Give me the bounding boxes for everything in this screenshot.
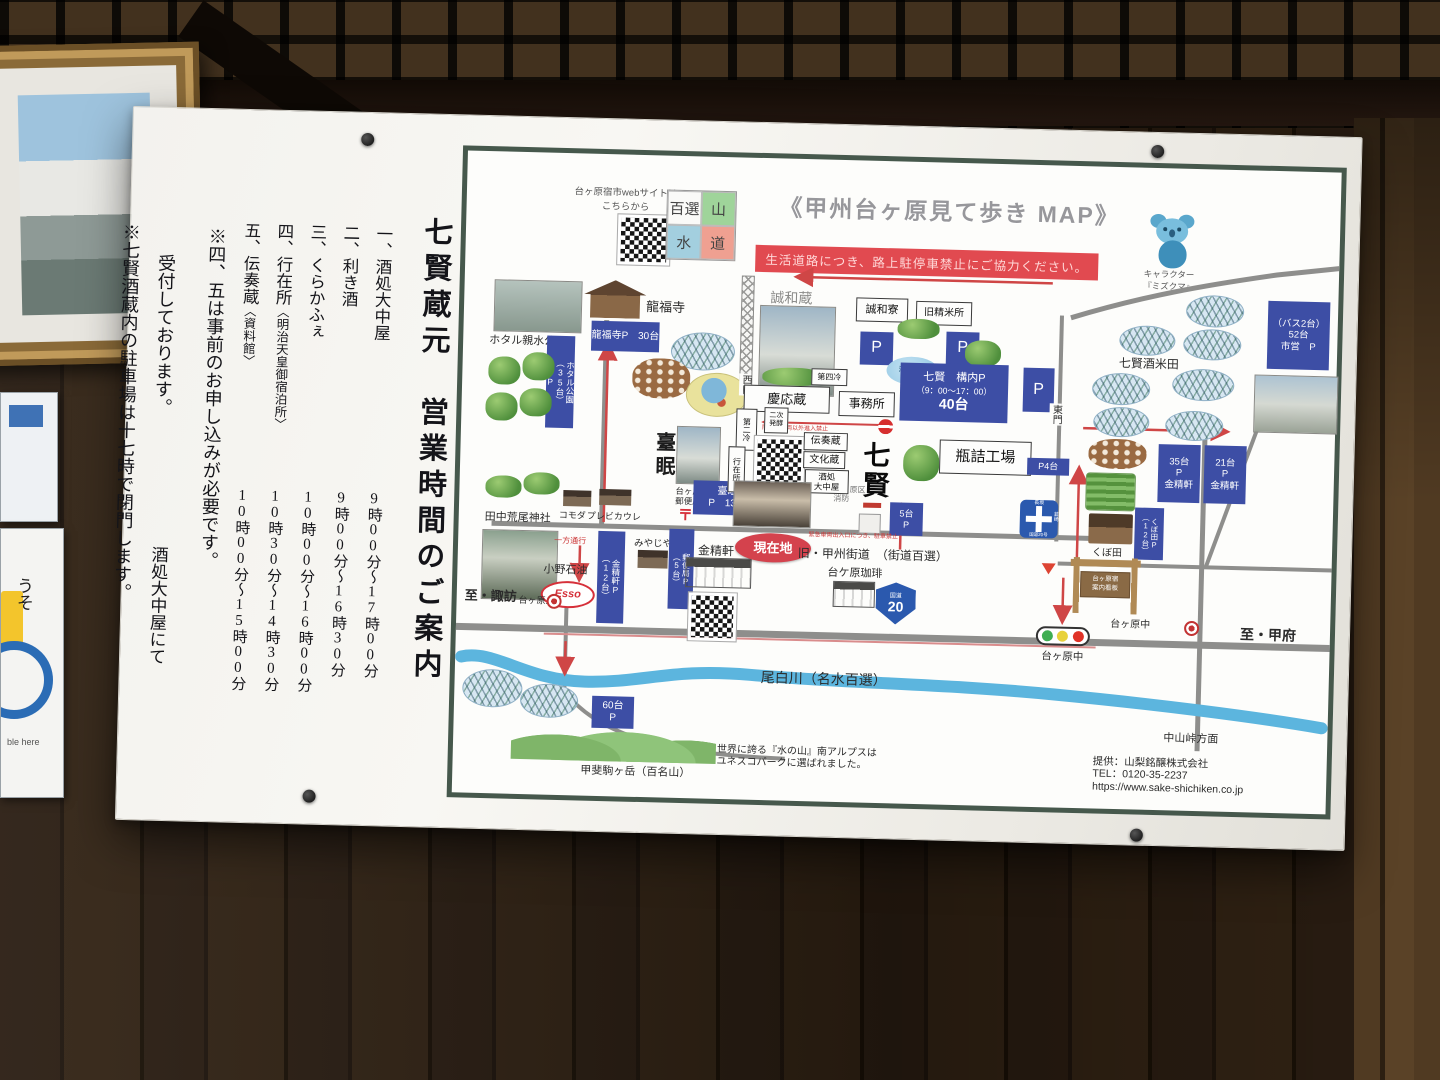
parking-shiei: （バス2台） 52台 市営 P (1267, 301, 1331, 371)
hours-item-time: 10時00分～15時00分 (227, 488, 253, 691)
wood-wall-right (1354, 118, 1440, 1080)
no-entry-icon (878, 419, 893, 434)
rice-paddy-icon (520, 683, 579, 718)
sign-fragment-text: うそ (11, 577, 36, 611)
hours-item: 一、酒処大中屋9時00分～17時00分 (356, 215, 395, 819)
rice-paddy-icon (1186, 295, 1245, 328)
parking-kinseiken-21: 21台 P 金精軒 (1203, 445, 1246, 504)
screw-icon (361, 133, 374, 146)
box-dai4rei: 第四冷 (811, 368, 847, 386)
kinseiken-building-icon (685, 557, 752, 589)
daimin-logo: 臺眠 (645, 431, 674, 490)
tree-icon (897, 318, 939, 339)
hours-item-time: 10時00分～16時00分 (293, 489, 319, 692)
hours-item-name: 三、くらかふぇ (305, 223, 327, 339)
shrub-icon (485, 475, 522, 498)
label-daigahara-coffee: 台ケ原珈琲 (827, 567, 882, 581)
intersection-sign: 長坂韮崎国道20号 (1019, 500, 1058, 539)
rice-paddy-icon (1092, 372, 1151, 405)
screw-icon (1151, 145, 1164, 158)
hours-item: 四、行在所〈明治天皇御宿泊所〉10時30分～14時30分 (257, 213, 296, 817)
qr-code (688, 592, 737, 641)
label-emergency-no-parking: 緊急車両出入口につき、駐車禁止 (808, 532, 898, 541)
hours-item-name: 二、利き酒 (339, 224, 360, 307)
signal-dot (1073, 631, 1084, 642)
parking-p4: P4台 (1027, 458, 1069, 476)
photo-sakedokoro-daichuya (733, 480, 812, 528)
hours-note: ※四、五は事前のお申し込みが必要です。 (189, 211, 230, 815)
fire-station-icon (858, 513, 880, 534)
label-to-kofu: 至・甲府 (1240, 626, 1296, 644)
parking-shichiken-kounai: 七賢 構内P（9：00～17：00）40台 (899, 363, 1008, 424)
label-seiwagura: 誠和蔵 (770, 289, 812, 307)
box-jimusho: 事務所 (838, 391, 895, 417)
hours-item-sub: 〈明治天皇御宿泊所〉 (272, 305, 289, 430)
tree-icon (903, 445, 940, 482)
label-purebikaure: プレビカウレ (587, 511, 641, 523)
map-footer-credit: 提供：山梨銘醸株式会社 TEL：0120-35-2237 https://www… (1092, 755, 1244, 796)
hours-item-time: 10時30分～14時30分 (260, 488, 286, 691)
hours-item-name: 五、伝奏蔵 (240, 222, 261, 305)
hours-panel: 七賢蔵元 営業時間のご案内一、酒処大中屋9時00分～17時00分二、利き酒9時0… (144, 210, 457, 821)
label-daigahara-naka: 台ヶ原中 (1041, 650, 1083, 663)
hours-note-text: ※四、五は事前のお申し込みが必要です。 (198, 227, 227, 569)
field-icon (1085, 472, 1136, 511)
map: 台ヶ原宿市webサイトは こちらから 百選山水道 《甲州台ヶ原見て歩き MAP》… (452, 150, 1342, 814)
hours-item-time: 9時00分～17時00分 (360, 491, 386, 678)
box-niji-hakko: 二次 発酵 (764, 407, 789, 434)
hours-item-name: 一、酒処大中屋 (371, 225, 393, 341)
hours-columns: 七賢蔵元 営業時間のご案内一、酒処大中屋9時00分～17時00分二、利き酒9時0… (103, 209, 457, 821)
box-densogura: 伝奏蔵 (804, 432, 848, 451)
intersection-sign-label: 国道20号 (1019, 531, 1057, 537)
intersection-sign-label: 韮崎 (1052, 512, 1058, 522)
rice-paddy-icon (462, 669, 523, 709)
sign-blue-ring (0, 641, 53, 719)
label-kaikomagatake: 甲斐駒ヶ岳（百名山） (580, 765, 690, 781)
label-old-koshu-kaido: 旧・甲州街道 （街道百選） (798, 546, 948, 564)
sign-fragment-text: ble here (7, 737, 40, 747)
gate-board: 台ヶ原宿 案内看板 (1080, 571, 1131, 598)
tree-icon (488, 356, 521, 385)
label-nakayama-pass: 中山峠方面 (1163, 732, 1218, 746)
route-marker-icon (1041, 563, 1055, 574)
label-ojira-river: 尾白川（名水百選） (761, 669, 887, 689)
box-bunkagura: 文化蔵 (803, 451, 845, 469)
hours-item-name: 四、行在所 (273, 223, 294, 306)
intersection-sign-label: 長坂 (1020, 501, 1058, 508)
rice-paddy-icon (1119, 325, 1176, 356)
label-daigahara-naka: 台ヶ原中 (1110, 619, 1150, 632)
label-kinseiken: 金精軒 (698, 543, 734, 558)
bus-stop-icon (1184, 621, 1199, 636)
hours-item-sub: 〈資料館〉 (240, 304, 256, 367)
field-icon (632, 358, 691, 399)
tree-icon (965, 340, 1002, 367)
label-tanaka-arao-shrine: 田中荒尾神社 (485, 511, 551, 526)
label-shichiken-rice-field: 七賢酒米田 (1119, 356, 1179, 372)
route-shield-number: 20 (888, 599, 904, 613)
label-unesco-note: 世界に誇る『水の山』南アルプスは ユネスコパークに選ばれました。 (716, 744, 876, 772)
photo-city-parking (1253, 374, 1338, 434)
traffic-light-icon (1036, 626, 1090, 646)
map-frame: 台ヶ原宿市webサイトは こちらから 百選山水道 《甲州台ヶ原見て歩き MAP》… (447, 145, 1347, 819)
label-ryufukuji: 龍福寺 (646, 299, 685, 315)
hours-note-tail: 酒処大中屋にて (143, 545, 171, 665)
shichiken-logo: 七賢 (856, 437, 890, 504)
shop-icon (599, 489, 631, 506)
parking-line: 40台 (939, 396, 969, 414)
hours-note-text: ※七賢酒蔵内の駐車場は十七時で閉門します。 (111, 223, 141, 601)
label-miyajiya: みやじや (634, 538, 672, 550)
coffee-building-icon (833, 581, 876, 608)
shrub-icon (523, 472, 560, 495)
box-seiwa-ryo: 誠和寮 (856, 297, 909, 322)
label-ono-sekiyu: 小野石油 (543, 564, 587, 578)
shop-icon-komoda (563, 490, 591, 507)
kaikomagatake-mountain-icon (511, 721, 717, 764)
hours-item: 五、伝奏蔵〈資料館〉10時00分～15時00分 (224, 212, 263, 816)
rice-paddy-icon (1183, 329, 1242, 361)
rice-paddy-icon (1165, 410, 1224, 441)
parking-p: P (860, 331, 894, 365)
parking-kubota: くぼ田P （12台） (1134, 507, 1164, 560)
hours-note-text: 受付しております。 (152, 254, 176, 416)
hours-item-time: 9時00分～16時30分 (327, 490, 353, 677)
kubota-hut-icon (1088, 513, 1133, 544)
box-bottling-plant: 瓶詰工場 (939, 440, 1032, 476)
daigahara-signboard-gate: 台ヶ原宿 案内看板 (1072, 557, 1137, 615)
photo-hotaru-park (493, 279, 582, 333)
left-sign-lower: うそ ble here (0, 528, 64, 798)
tree-icon (485, 392, 518, 421)
label-to-suwa: 至・諏訪 (465, 588, 517, 605)
label-east-gate: 東門 (1049, 403, 1061, 425)
rice-paddy-icon (1093, 406, 1150, 437)
screw-icon (1130, 828, 1143, 841)
postal-mark-icon: 〒 (678, 507, 693, 525)
parking-kinseiken-12: 金精軒P （12台） (596, 531, 625, 624)
route-20-shield: 国道20 (875, 582, 916, 625)
hours-item: 三、くらかふぇ10時00分～16時00分 (290, 213, 329, 817)
parking-kinseiken-35: 35台 P 金精軒 (1157, 444, 1200, 503)
map-items: ホタル親水公園龍福寺龍福寺P 30台ホタル公園 （35台） P田中荒尾神社臺眠コ… (452, 150, 1342, 814)
signal-dot (1057, 631, 1068, 642)
parking-ryufukuji: 龍福寺P 30台 (591, 321, 660, 353)
label-komoda: コモダ (559, 510, 586, 521)
tree-icon (519, 388, 552, 417)
label-one-way: 一方通行 (554, 536, 586, 546)
hours-note: 受付しております。酒処大中屋にて (139, 210, 180, 814)
signboard: 七賢蔵元 営業時間のご案内一、酒処大中屋9時00分～17時00分二、利き酒9時0… (115, 106, 1363, 851)
field-icon (1088, 438, 1147, 469)
ryufukuji-temple-icon (584, 279, 647, 319)
signal-dot (1042, 630, 1053, 641)
shop-icon-miyajiya (637, 550, 667, 569)
hours-item: 二、利き酒9時00分～16時30分 (323, 214, 362, 818)
photo-daimin (676, 426, 721, 485)
tree-icon (522, 352, 555, 381)
parking-hotaru-koen: ホタル公園 （35台） P (545, 336, 575, 429)
qr-code (754, 436, 805, 487)
rice-paddy-icon (1172, 368, 1235, 402)
parking-5: 5台 P (889, 502, 923, 536)
left-sign-upper (0, 392, 58, 522)
